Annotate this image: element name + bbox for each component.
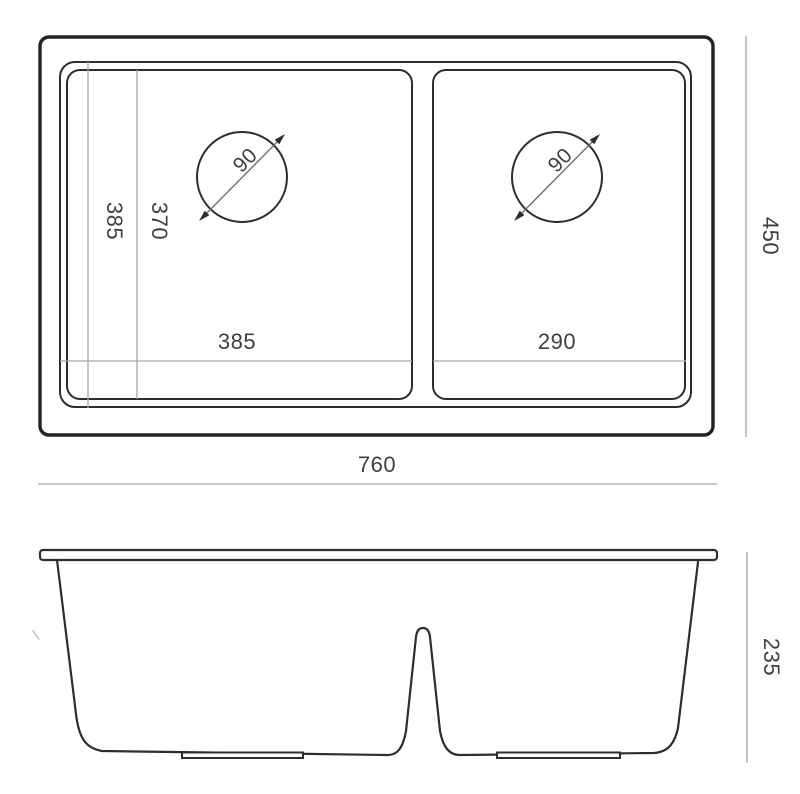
left-foot-pad (182, 753, 303, 759)
dim-label-overall-height: 235 (759, 638, 784, 676)
dim-label-left-bowl-width: 385 (218, 329, 256, 354)
dim-label-right-drain: 90 (544, 144, 577, 177)
right-foot-pad (497, 753, 620, 759)
sink-outer-edge (40, 37, 713, 435)
left-drain: 90 (197, 132, 287, 222)
right-drain: 90 (512, 132, 602, 222)
dim-label-right-bowl-width: 290 (538, 329, 576, 354)
dim-label-overall-width: 760 (358, 452, 396, 477)
dim-label-rim-depth: 385 (102, 202, 127, 240)
dim-label-left-drain: 90 (229, 144, 262, 177)
sink-technical-drawing: 90 90 385 370 385 290 450 760 (0, 0, 800, 794)
side-view: 235 (33, 550, 784, 763)
dim-label-bowl-depth: 370 (147, 202, 172, 240)
top-view: 90 90 385 370 385 290 450 760 (38, 36, 783, 484)
drawing-canvas: 90 90 385 370 385 290 450 760 (0, 0, 800, 794)
dim-label-overall-depth: 450 (758, 217, 783, 255)
stray-mark (33, 631, 39, 639)
rim-lip-profile (40, 550, 717, 560)
sink-body-profile (57, 560, 698, 755)
